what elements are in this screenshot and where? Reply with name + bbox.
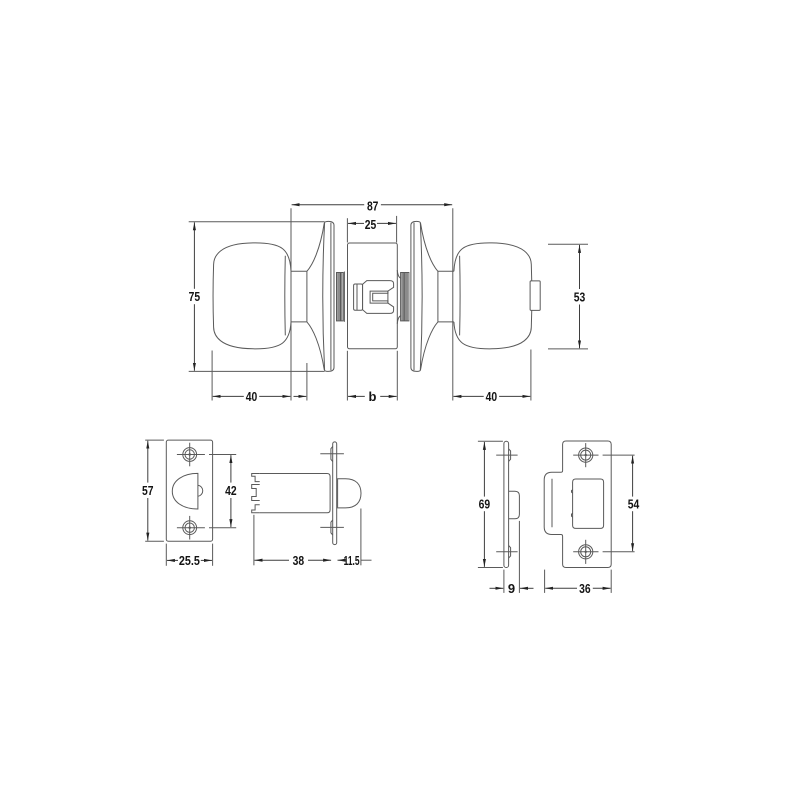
svg-text:40: 40 (486, 389, 498, 404)
svg-text:40: 40 (246, 389, 258, 404)
svg-text:69: 69 (479, 497, 491, 512)
svg-text:75: 75 (189, 289, 201, 304)
svg-text:9: 9 (508, 581, 515, 596)
svg-text:25.5: 25.5 (179, 553, 200, 568)
svg-text:87: 87 (367, 198, 379, 213)
svg-text:57: 57 (142, 483, 154, 498)
svg-text:b: b (369, 389, 377, 404)
svg-text:25: 25 (365, 217, 377, 232)
svg-text:36: 36 (579, 581, 591, 596)
svg-text:42: 42 (225, 483, 237, 498)
svg-text:11.5: 11.5 (344, 553, 360, 568)
svg-text:53: 53 (574, 289, 586, 304)
svg-text:54: 54 (628, 497, 640, 512)
svg-text:38: 38 (293, 553, 305, 568)
